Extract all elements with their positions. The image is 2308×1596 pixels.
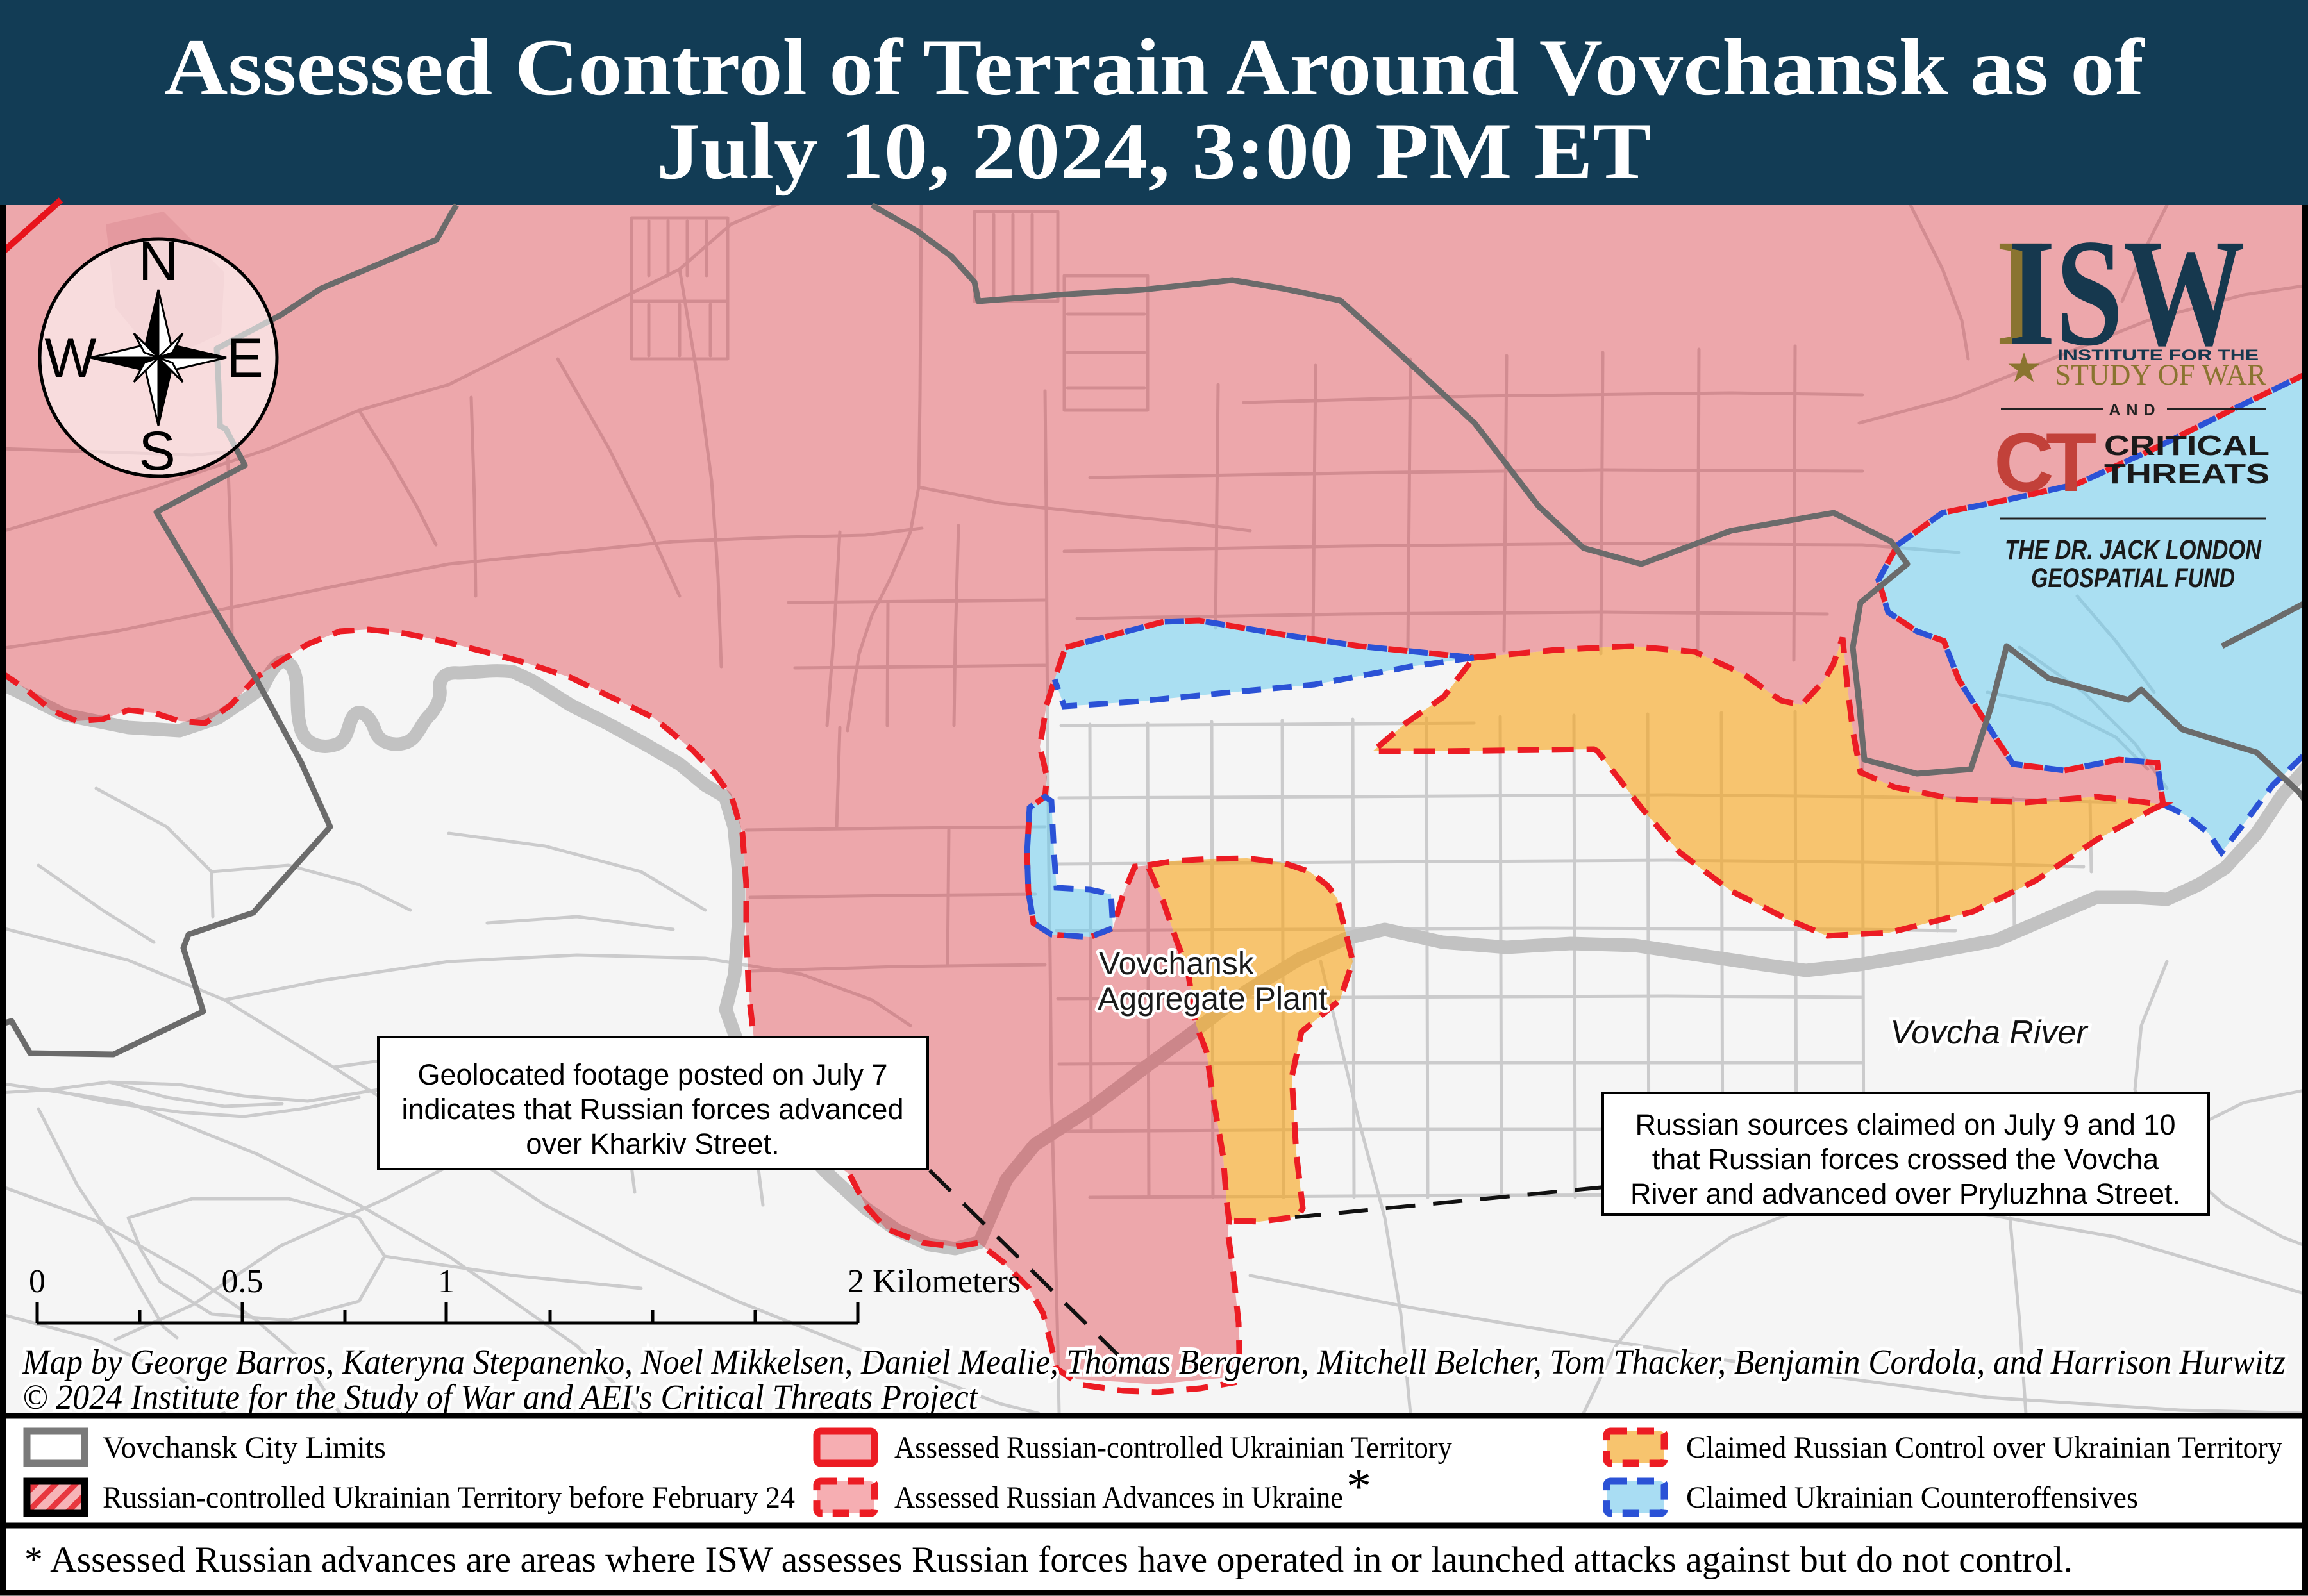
svg-text:0: 0 xyxy=(29,1263,46,1300)
svg-text:W: W xyxy=(44,328,96,389)
svg-text:that Russian forces crossed th: that Russian forces crossed the Vovcha xyxy=(1652,1143,2159,1176)
svg-text:Map by George Barros, Kateryna: Map by George Barros, Kateryna Stepanenk… xyxy=(22,1342,2286,1381)
svg-text:over Kharkiv Street.: over Kharkiv Street. xyxy=(526,1127,779,1160)
svg-text:CRITICAL: CRITICAL xyxy=(2104,430,2270,461)
svg-text:Geolocated footage posted on J: Geolocated footage posted on July 7 xyxy=(417,1058,887,1091)
svg-text:THREATS: THREATS xyxy=(2104,458,2270,490)
svg-text:Aggregate Plant: Aggregate Plant xyxy=(1098,981,1328,1017)
svg-text:AND: AND xyxy=(2109,401,2161,419)
svg-text:THE DR. JACK LONDON: THE DR. JACK LONDON xyxy=(2005,535,2262,565)
svg-text:Russian sources claimed on Jul: Russian sources claimed on July 9 and 10 xyxy=(1635,1108,2176,1141)
svg-text:River and advanced over Pryluz: River and advanced over Pryluzhna Street… xyxy=(1630,1177,2180,1210)
svg-text:Vovchansk: Vovchansk xyxy=(1099,945,1255,981)
svg-text:*: * xyxy=(1346,1458,1371,1514)
svg-text:CT: CT xyxy=(1994,415,2096,509)
svg-text:1: 1 xyxy=(438,1263,455,1300)
svg-text:0.5: 0.5 xyxy=(222,1263,263,1300)
svg-text:Vovcha River: Vovcha River xyxy=(1890,1014,2089,1051)
svg-text:July 10, 2024, 3:00 PM ET: July 10, 2024, 3:00 PM ET xyxy=(656,107,1652,196)
svg-text:Vovchansk City Limits: Vovchansk City Limits xyxy=(103,1431,386,1465)
svg-text:S: S xyxy=(138,420,175,482)
svg-text:Claimed Russian Control over U: Claimed Russian Control over Ukrainian T… xyxy=(1686,1431,2282,1465)
svg-text:Assessed Control of Terrain Ar: Assessed Control of Terrain Around Vovch… xyxy=(164,23,2145,112)
svg-text:N: N xyxy=(138,231,178,292)
svg-text:★: ★ xyxy=(2005,345,2042,391)
svg-text:Russian-controlled Ukrainian T: Russian-controlled Ukrainian Territory b… xyxy=(103,1481,795,1515)
svg-text:E: E xyxy=(226,328,263,389)
svg-text:indicates that Russian forces: indicates that Russian forces advanced xyxy=(402,1093,904,1126)
svg-text:STUDY OF WAR: STUDY OF WAR xyxy=(2055,358,2267,392)
svg-text:* Assessed Russian advances ar: * Assessed Russian advances are areas wh… xyxy=(24,1540,2073,1580)
svg-text:GEOSPATIAL FUND: GEOSPATIAL FUND xyxy=(2031,563,2235,594)
svg-text:Claimed Ukrainian Counteroffen: Claimed Ukrainian Counteroffensives xyxy=(1686,1481,2138,1515)
svg-text:2 Kilometers: 2 Kilometers xyxy=(848,1263,1021,1300)
svg-text:Assessed Russian Advances in U: Assessed Russian Advances in Ukraine xyxy=(894,1481,1343,1515)
svg-text:© 2024 Institute for the Study: © 2024 Institute for the Study of War an… xyxy=(22,1377,979,1417)
